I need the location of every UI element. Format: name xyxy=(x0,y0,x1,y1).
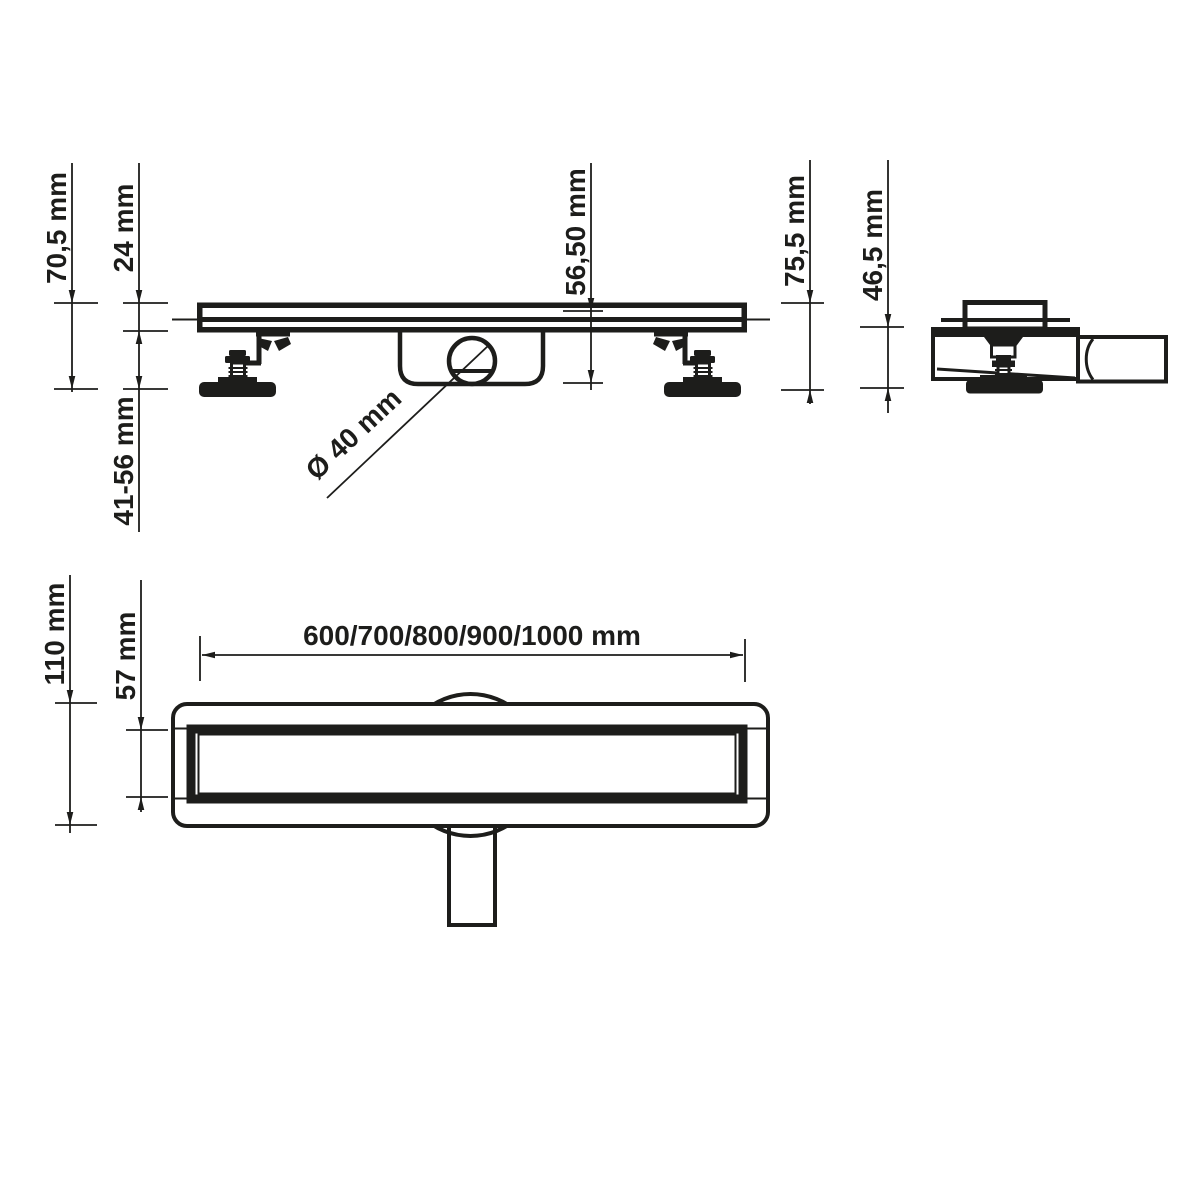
technical-drawing: Ø 40 mm xyxy=(0,0,1200,1200)
dimension-label-grate-width: 57 mm xyxy=(110,612,141,701)
plan-view: 600/700/800/900/1000 mm 110 mm 57 mm xyxy=(39,575,768,925)
dimension-label-total-height: 70,5 mm xyxy=(41,172,72,284)
dimension-label-feet-range: 41-56 mm xyxy=(108,396,139,525)
end-view: 75,5 mm 46,5 mm xyxy=(779,160,1166,413)
end-grate xyxy=(965,303,1045,330)
plan-flange xyxy=(173,704,768,826)
dimension-label-lengths: 600/700/800/900/1000 mm xyxy=(303,620,641,651)
channel-rail xyxy=(197,303,747,333)
dimension-label-end-total-height: 75,5 mm xyxy=(779,175,810,287)
dimension-label-flange-width: 110 mm xyxy=(39,583,70,686)
end-outlet-pipe xyxy=(1078,337,1166,382)
dimension-label-trap-depth: 56,50 mm xyxy=(560,168,591,296)
side-view: Ø 40 mm xyxy=(41,163,770,532)
dimension-label-outlet-diameter: Ø 40 mm xyxy=(300,382,408,485)
dimension-label-end-body-height: 46,5 mm xyxy=(857,189,888,301)
dimension-label-edge-height: 24 mm xyxy=(108,184,139,273)
right-foot xyxy=(653,330,741,397)
end-view-dimensions: 75,5 mm 46,5 mm xyxy=(779,160,904,413)
left-foot xyxy=(199,330,291,397)
